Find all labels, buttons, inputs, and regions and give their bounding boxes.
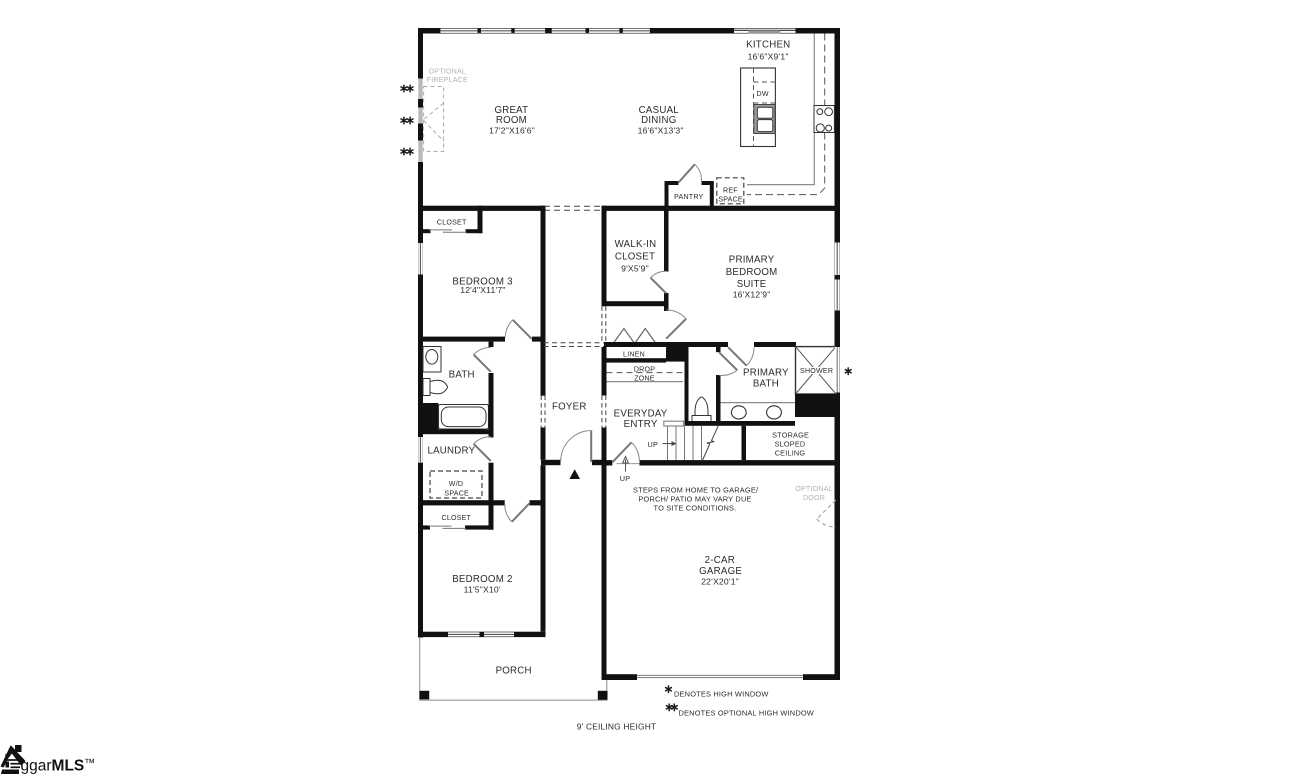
svg-text:SLOPED: SLOPED bbox=[775, 440, 806, 449]
svg-text:CLOSET: CLOSET bbox=[615, 252, 655, 263]
svg-text:FOYER: FOYER bbox=[552, 402, 587, 413]
svg-text:ENTRY: ENTRY bbox=[624, 419, 658, 430]
svg-text:UP: UP bbox=[620, 474, 631, 483]
svg-text:22'X20'1": 22'X20'1" bbox=[701, 577, 739, 587]
svg-text:PRIMARY: PRIMARY bbox=[729, 255, 775, 266]
svg-text:16'X12'9": 16'X12'9" bbox=[733, 290, 771, 300]
svg-text:OPTIONAL: OPTIONAL bbox=[429, 67, 466, 75]
svg-text:STEPS FROM HOME TO GARAGE/: STEPS FROM HOME TO GARAGE/ bbox=[633, 485, 759, 494]
svg-text:DINING: DINING bbox=[641, 115, 676, 126]
svg-text:SPACE: SPACE bbox=[444, 489, 469, 497]
svg-text:LAUNDRY: LAUNDRY bbox=[427, 445, 475, 456]
svg-text:SPACE: SPACE bbox=[718, 196, 743, 204]
svg-text:STORAGE: STORAGE bbox=[772, 431, 809, 440]
svg-text:DENOTES OPTIONAL HIGH WINDOW: DENOTES OPTIONAL HIGH WINDOW bbox=[679, 709, 815, 718]
svg-text:DROP: DROP bbox=[634, 365, 655, 373]
svg-text:CEILING: CEILING bbox=[775, 449, 806, 458]
svg-text:CLOSET: CLOSET bbox=[442, 514, 472, 522]
svg-text:ggarMLS™: ggarMLS™ bbox=[21, 758, 96, 775]
svg-text:REF: REF bbox=[723, 187, 738, 195]
svg-text:BATH: BATH bbox=[753, 378, 779, 389]
svg-text:BEDROOM 2: BEDROOM 2 bbox=[452, 574, 512, 585]
svg-text:BEDROOM: BEDROOM bbox=[726, 267, 778, 278]
svg-text:9' CEILING HEIGHT: 9' CEILING HEIGHT bbox=[577, 722, 656, 732]
svg-text:WALK-IN: WALK-IN bbox=[615, 239, 657, 250]
svg-text:16'6"X13'3": 16'6"X13'3" bbox=[638, 126, 684, 136]
svg-text:PORCH: PORCH bbox=[496, 666, 532, 677]
svg-text:SUITE: SUITE bbox=[737, 279, 767, 290]
svg-text:SHOWER: SHOWER bbox=[800, 367, 833, 375]
svg-text:12'4"X11'7": 12'4"X11'7" bbox=[460, 285, 505, 295]
svg-text:17'2"X16'6": 17'2"X16'6" bbox=[489, 126, 535, 136]
svg-text:LINEN: LINEN bbox=[623, 350, 645, 358]
svg-text:ROOM: ROOM bbox=[496, 115, 527, 126]
svg-text:OPTIONAL: OPTIONAL bbox=[795, 485, 832, 493]
svg-text:EVERYDAY: EVERYDAY bbox=[614, 409, 668, 420]
svg-text:11'5"X10': 11'5"X10' bbox=[464, 584, 501, 594]
svg-text:PRIMARY: PRIMARY bbox=[743, 368, 789, 379]
svg-text:DW: DW bbox=[757, 90, 769, 98]
svg-text:2-CAR: 2-CAR bbox=[705, 555, 735, 566]
svg-text:UP: UP bbox=[648, 440, 659, 449]
svg-text:FIREPLACE: FIREPLACE bbox=[427, 76, 468, 84]
svg-text:GARAGE: GARAGE bbox=[699, 566, 742, 577]
svg-text:16'6"X9'1": 16'6"X9'1" bbox=[748, 51, 789, 61]
svg-text:ZONE: ZONE bbox=[634, 375, 655, 383]
svg-text:CLOSET: CLOSET bbox=[437, 219, 467, 227]
svg-text:PANTRY: PANTRY bbox=[674, 193, 703, 201]
svg-text:DENOTES HIGH WINDOW: DENOTES HIGH WINDOW bbox=[674, 690, 769, 699]
svg-text:TO SITE CONDITIONS.: TO SITE CONDITIONS. bbox=[654, 504, 737, 513]
svg-text:PORCH/ PATIO MAY VARY DUE: PORCH/ PATIO MAY VARY DUE bbox=[638, 494, 751, 503]
svg-text:KITCHEN: KITCHEN bbox=[746, 40, 790, 51]
svg-text:W/D: W/D bbox=[449, 480, 463, 488]
svg-text:9'X5'9": 9'X5'9" bbox=[621, 263, 649, 273]
svg-text:BATH: BATH bbox=[449, 370, 475, 381]
svg-text:DOOR: DOOR bbox=[803, 494, 825, 502]
